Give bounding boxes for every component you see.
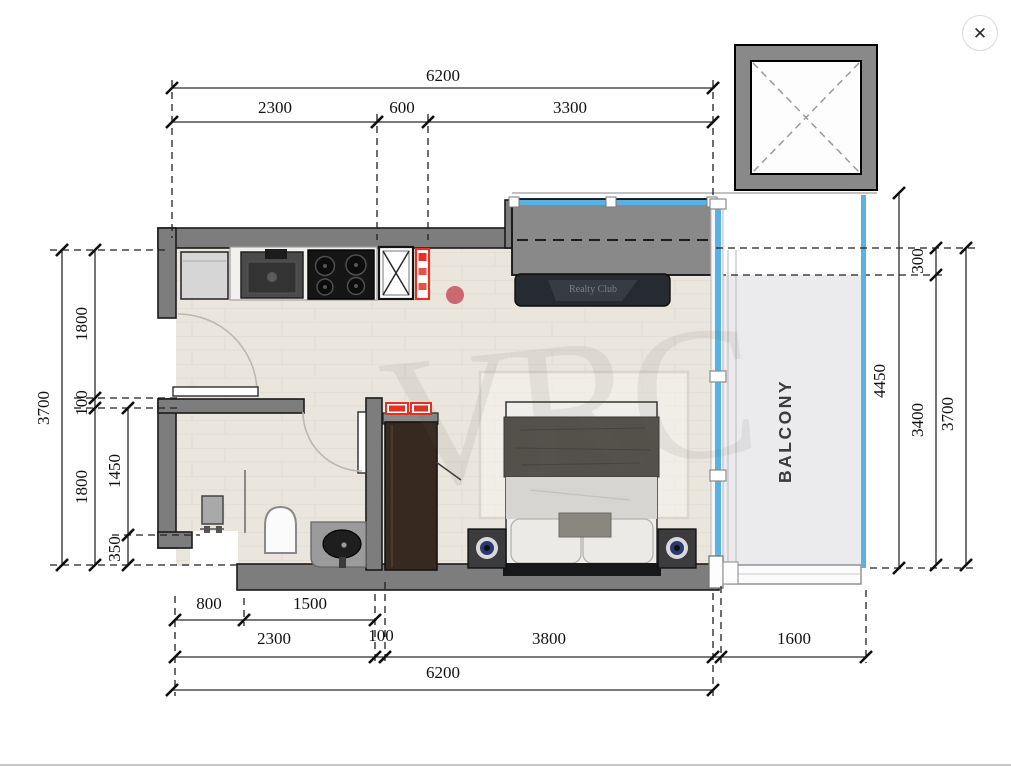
elevator-shaft: [735, 45, 877, 190]
left-wall-lower: [158, 399, 176, 548]
lamp-left: [484, 545, 490, 551]
kitchen: [181, 247, 429, 300]
dim-left-mid2: 100: [72, 390, 91, 416]
sink-drain: [267, 272, 277, 282]
balcony-door-frame: [709, 556, 723, 588]
dim-top-seg3: 3300: [553, 98, 587, 117]
dim-bottom-r2c: 3800: [532, 629, 566, 648]
balcony-label: BALCONY: [775, 379, 795, 483]
dim-top-seg1: 2300: [258, 98, 292, 117]
dim-top-seg2: 600: [389, 98, 415, 117]
dim-left-total: 3700: [34, 391, 53, 425]
bathroom-door-leaf: [358, 412, 366, 473]
dim-bottom-r1b: 1500: [293, 594, 327, 613]
close-icon: ✕: [973, 25, 987, 42]
entry-door-leaf: [173, 387, 258, 396]
lamp-right: [674, 545, 680, 551]
dim-left-inner2: 350: [105, 536, 124, 562]
bathroom-top-wall: [158, 399, 304, 413]
kitchen-riser: [416, 249, 429, 299]
top-wall: [158, 228, 513, 248]
dim-bottom-balcony: 1600: [777, 629, 811, 648]
red-dot-marker: [446, 286, 464, 304]
sink-faucet: [265, 249, 287, 259]
dim-left-mid1: 1800: [72, 307, 91, 341]
left-wall-upper: [158, 228, 176, 318]
shower-base: [216, 526, 222, 533]
built-in-closet: [509, 197, 717, 275]
brand-watermark: VRC: [372, 285, 759, 532]
dim-right-overall: 4450: [870, 364, 889, 398]
page-bottom-border: [0, 764, 1011, 766]
floor-plan: BALCONY Realty Club: [0, 0, 1011, 768]
dim-bottom-r2b: 100: [368, 626, 394, 645]
dim-bottom-total: 6200: [426, 663, 460, 682]
shower-head: [202, 496, 223, 524]
dim-left-inner1: 1450: [105, 454, 124, 488]
dim-right-offset: 300: [908, 248, 927, 274]
dim-bottom-r1a: 800: [196, 594, 222, 613]
bathroom-right-wall: [366, 398, 382, 570]
exterior-notch: [190, 531, 238, 566]
headboard: [503, 563, 661, 576]
dim-bottom-r2a: 2300: [257, 629, 291, 648]
dim-top-total: 6200: [426, 66, 460, 85]
dim-left-mid3: 1800: [72, 470, 91, 504]
console-watermark: Realty Club: [569, 284, 617, 295]
floor-plan-viewer: BALCONY Realty Club: [0, 0, 1011, 768]
bed-runner: [559, 513, 611, 537]
basin-faucet: [339, 557, 346, 568]
dim-right-inner: 3400: [908, 403, 927, 437]
balcony-glass-edge: [861, 195, 866, 568]
vanity-sink: [311, 522, 366, 568]
close-button[interactable]: ✕: [962, 15, 998, 51]
fridge: [181, 252, 228, 299]
dim-right-outer: 3700: [938, 397, 957, 431]
toilet: [265, 507, 296, 553]
